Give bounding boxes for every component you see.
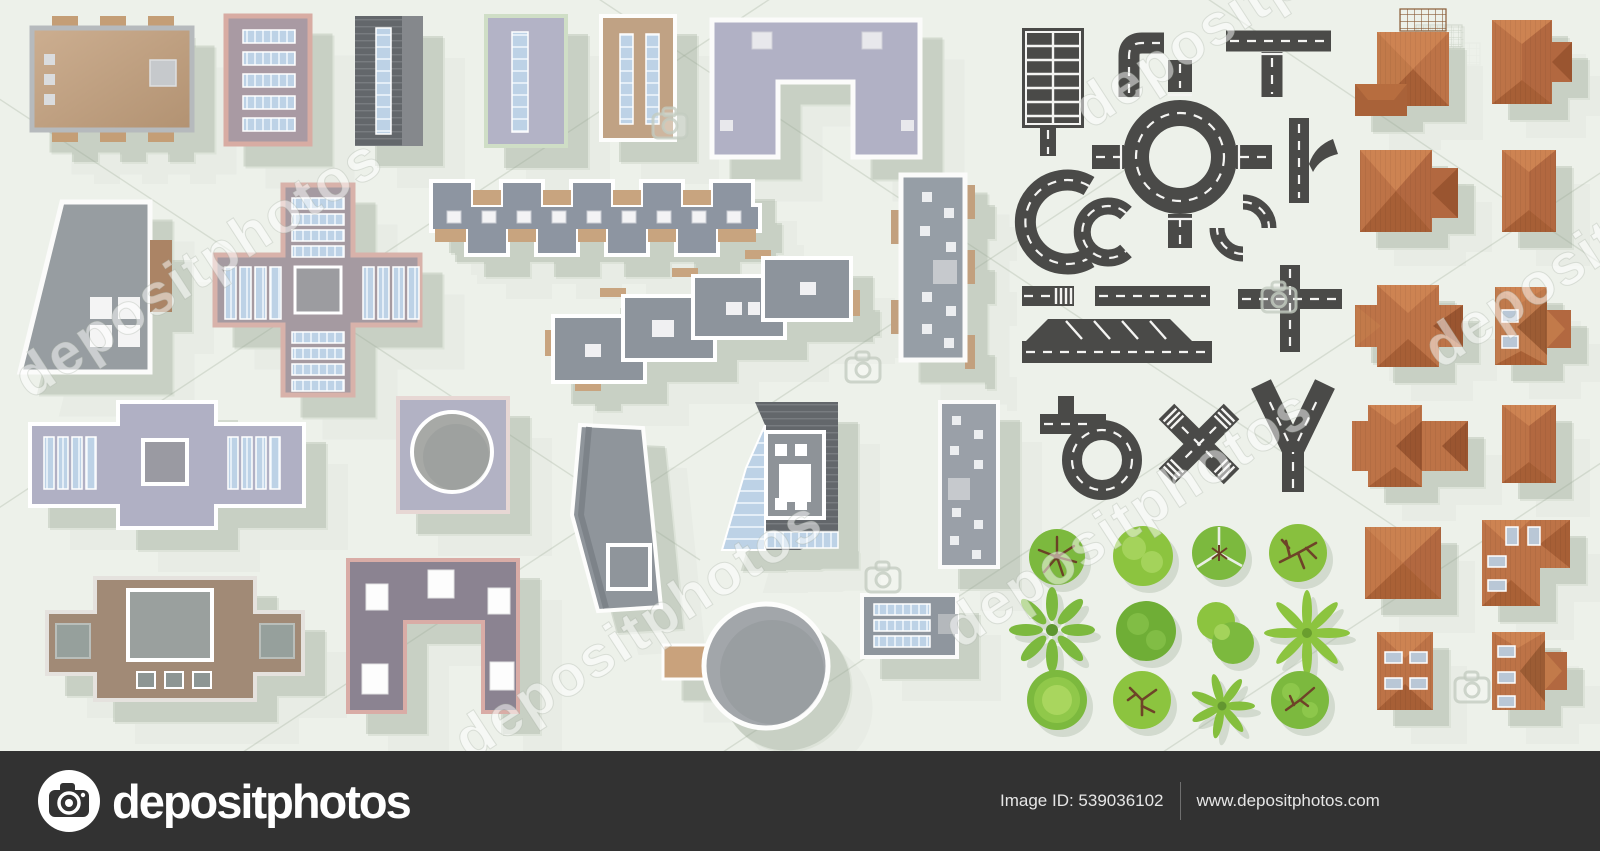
site-url: www.depositphotos.com <box>1197 791 1380 811</box>
watermark-footer-bar: depositphotos Image ID: 539036102 www.de… <box>0 751 1600 851</box>
image-meta: Image ID: 539036102 www.depositphotos.co… <box>1000 751 1380 851</box>
house-rect-hip <box>1502 150 1556 232</box>
building-tall-slab-balconies <box>891 175 975 369</box>
house-rect-hip-2 <box>1502 405 1556 483</box>
building-lavender-skylight-block <box>486 16 566 146</box>
tree-dense-dark <box>1116 601 1176 661</box>
city-map-kit-illustration: depositphotos depositphotos depositphoto… <box>0 0 1600 751</box>
stock-image-preview: depositphotos depositphotos depositphoto… <box>0 0 1600 851</box>
tree-concentric <box>1027 670 1087 730</box>
tree-branches-blotch <box>1271 671 1329 729</box>
building-apartment-pink-trim <box>226 16 310 144</box>
house-pyramid <box>1365 527 1441 599</box>
tree-branch-network <box>1269 524 1327 582</box>
brand-wordmark: depositphotos <box>112 774 410 829</box>
meta-divider <box>1180 782 1181 820</box>
palm-tree <box>1264 590 1350 676</box>
windows-row <box>447 211 741 223</box>
image-id-label: Image ID: 539036102 <box>1000 791 1164 811</box>
depositphotos-logo: depositphotos <box>36 751 410 851</box>
tree-branches-light <box>1113 671 1171 729</box>
building-flat-roof-tan <box>32 16 192 142</box>
building-square-hall-dome <box>398 398 508 512</box>
building-thin-slab-tower <box>940 402 998 567</box>
camera-icon <box>36 768 102 834</box>
house-four-skylights <box>1377 632 1433 710</box>
road-with-crosswalk <box>1022 288 1074 304</box>
building-dark-skylight-block <box>355 16 423 146</box>
tree-cracked-canopy <box>1192 526 1246 580</box>
